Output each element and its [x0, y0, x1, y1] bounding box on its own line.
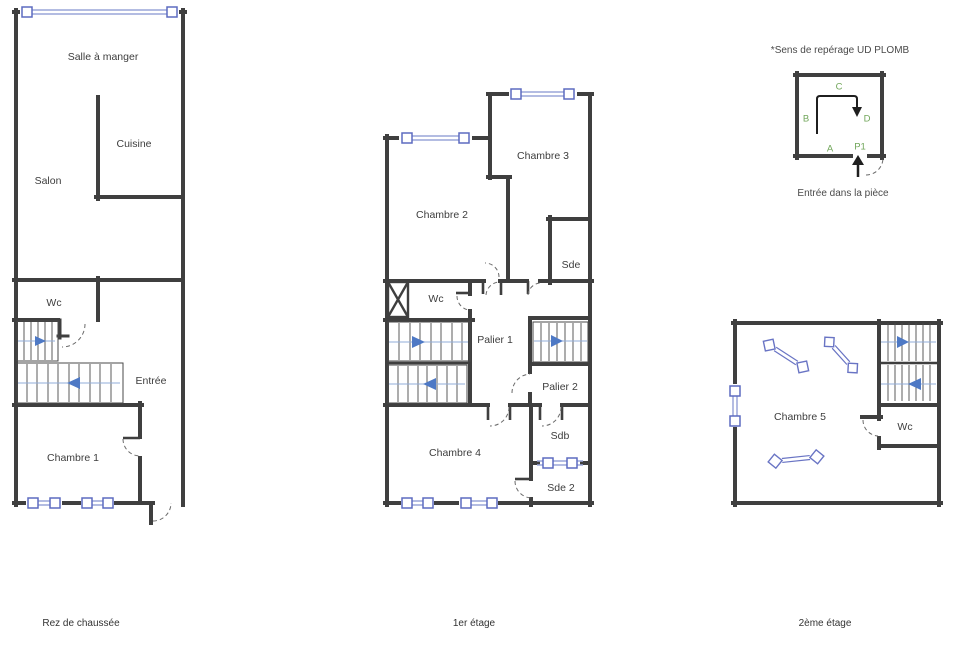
room-label-chambre5: Chambre 5 [774, 412, 826, 423]
room-label-chambre1: Chambre 1 [47, 453, 99, 464]
staircase [17, 363, 123, 403]
room-label-chambre4: Chambre 4 [429, 448, 481, 459]
skylight-symbol [767, 449, 824, 469]
shaft-cross-symbol [388, 282, 408, 317]
walls [14, 10, 185, 523]
door-arc [528, 283, 540, 295]
door-arc [490, 407, 509, 426]
room-label-sde2: Sde 2 [547, 483, 574, 494]
room-label-salle-a-manger: Salle à manger [68, 52, 139, 63]
door-arc [542, 407, 561, 426]
door-arc [486, 282, 499, 295]
window-symbol [537, 458, 583, 468]
staircase [388, 365, 467, 403]
reading-direction-path [817, 96, 857, 134]
stair-direction-arrow-icon [412, 336, 425, 348]
legend-marker-a: A [827, 144, 833, 154]
floor-label-2eme: 2ème étage [799, 619, 852, 629]
room-label-chambre3: Chambre 3 [517, 151, 569, 162]
skylight-symbol [820, 333, 862, 377]
room-label-palier1: Palier 1 [477, 335, 513, 346]
room-label-salon: Salon [35, 176, 62, 187]
floor-plan-2eme [730, 321, 941, 505]
floor-label-rdc: Rez de chaussée [42, 619, 119, 629]
door-arc [515, 481, 531, 498]
window-symbol [730, 384, 740, 427]
legend-marker-d: D [864, 114, 871, 124]
stair-direction-arrow-icon [423, 378, 436, 390]
legend-marker-c: C [836, 82, 843, 92]
direction-arrow-down-icon [852, 107, 862, 117]
room-label-sdb: Sdb [551, 431, 570, 442]
floor-label-1er: 1er étage [453, 619, 495, 629]
room-label-cuisine: Cuisine [116, 139, 151, 150]
floor-plan-drawing [0, 0, 961, 652]
window-symbol [81, 498, 114, 508]
window-symbol [401, 498, 434, 508]
window-symbol [26, 498, 62, 508]
legend-caption: Entrée dans la pièce [797, 189, 888, 199]
entry-arrow-up-icon [852, 155, 864, 165]
staircase [388, 322, 470, 361]
door-arc [153, 503, 171, 521]
door-arc [457, 296, 469, 310]
legend-title: *Sens de repérage UD PLOMB [771, 46, 909, 56]
door-arc [485, 263, 499, 277]
staircase [533, 322, 588, 362]
window-symbol [399, 133, 472, 143]
door-arc [866, 158, 883, 175]
room-label-wc-2eme: Wc [897, 422, 912, 433]
stair-direction-arrow-icon [897, 336, 909, 348]
room-label-wc-1er: Wc [428, 294, 443, 305]
stair-direction-arrow-icon [908, 378, 921, 390]
legend-marker-b: B [803, 114, 809, 124]
window-symbol [459, 498, 498, 508]
door-arc [512, 374, 530, 393]
room-label-chambre2: Chambre 2 [416, 210, 468, 221]
room-label-palier2: Palier 2 [542, 382, 578, 393]
staircase [881, 323, 936, 361]
floor-plan-rdc [14, 7, 185, 523]
window-symbol [20, 7, 179, 17]
staircase [881, 365, 936, 401]
legend-marker-p1: P1 [854, 142, 866, 152]
skylight-symbol [760, 335, 813, 376]
room-label-entree: Entrée [136, 376, 167, 387]
door-arc [123, 439, 140, 456]
staircase [17, 321, 58, 361]
floor-plan-sheet: Salle à manger Cuisine Salon Wc Entrée C… [0, 0, 961, 652]
room-label-sde: Sde [562, 260, 581, 271]
room-label-wc-rdc: Wc [46, 298, 61, 309]
stair-direction-arrow-icon [35, 336, 46, 346]
door-arc [863, 420, 878, 436]
window-symbol [509, 89, 577, 99]
